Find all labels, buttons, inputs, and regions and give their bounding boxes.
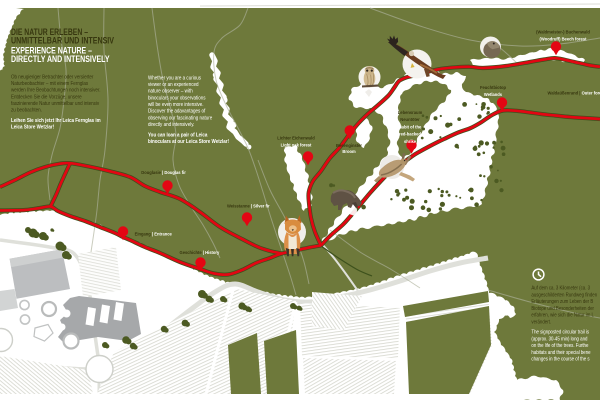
svg-text:DIRECTLY AND INTENSIVELY: DIRECTLY AND INTENSIVELY (11, 54, 110, 64)
svg-text:Broom: Broom (342, 149, 355, 154)
svg-text:Light oak forest: Light oak forest (281, 142, 312, 147)
svg-text:red-backed: red-backed (399, 131, 421, 136)
svg-text:(Waldmeister-) Buchenwald: (Waldmeister-) Buchenwald (536, 29, 590, 34)
svg-text:Feuchtbiotop: Feuchtbiotop (480, 85, 506, 90)
svg-text:The signposted circular trail: The signposted circular trail is(approx.… (531, 329, 590, 363)
svg-text:shrike: shrike (404, 138, 417, 143)
svg-text:Weisstanne | Silver fir: Weisstanne | Silver fir (227, 203, 270, 208)
svg-text:Wetlands: Wetlands (484, 92, 503, 97)
svg-text:Waldaüßenrand | Outer fores: Waldaüßenrand | Outer fores (548, 90, 600, 95)
svg-text:Neuntöter: Neuntöter (400, 117, 420, 122)
svg-text:Lichter Eichenwald: Lichter Eichenwald (277, 135, 315, 140)
svg-text:(Woodruff) Beech forest: (Woodruff) Beech forest (540, 36, 587, 41)
svg-text:Geschichte | History: Geschichte | History (180, 250, 220, 255)
svg-text:Lebensraum: Lebensraum (398, 110, 422, 115)
svg-text:UNMITTELBAR UND INTENSIV: UNMITTELBAR UND INTENSIV (11, 36, 114, 46)
svg-text:Eingang | Entrance: Eingang | Entrance (135, 231, 173, 236)
svg-text:Douglasie | Douglas fir: Douglasie | Douglas fir (141, 170, 186, 175)
svg-text:Besenginster: Besenginster (336, 143, 362, 148)
svg-text:Habit of the: Habit of the (399, 124, 422, 129)
